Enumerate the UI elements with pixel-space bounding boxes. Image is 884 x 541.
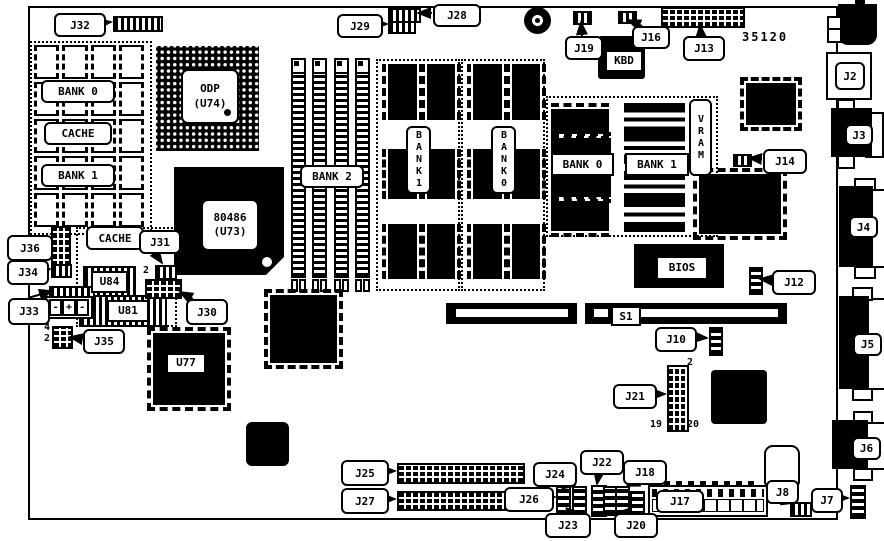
j21-pin2: 2 [687, 358, 693, 368]
j31-pin2: 2 [143, 266, 149, 276]
j6-label: J6 [860, 443, 873, 454]
j35-pin2: 2 [44, 334, 50, 344]
j27-connector [397, 491, 507, 511]
u84-chip-label: U84 [91, 271, 128, 293]
dram-bank0-text: BANK0 [499, 130, 509, 190]
battery-holder: - + - [45, 296, 93, 319]
j12-connector [749, 267, 763, 295]
j13-label: J13 [694, 43, 714, 54]
bios-chip-label: BIOS [656, 256, 708, 280]
j4-tab-bottom [854, 266, 876, 279]
j30-label: J30 [197, 307, 217, 318]
j8-label: J8 [776, 487, 789, 498]
j5-tab-bottom [852, 388, 873, 401]
j34-connector [51, 264, 72, 278]
j21-label: J21 [625, 391, 645, 402]
j25-callout: J25 [341, 460, 389, 486]
j35-pin2-text: 2 [44, 333, 50, 344]
j24-callout: J24 [533, 462, 577, 487]
j33-callout: J33 [8, 298, 50, 325]
dram-bank0-label: BANK0 [491, 126, 516, 194]
cache-chip [34, 193, 59, 227]
logic-chip-top-right [740, 77, 802, 131]
cache-bank1-label: BANK 1 [41, 164, 115, 187]
cache-chip [62, 45, 87, 79]
din-keyboard-connector [838, 4, 877, 45]
speaker [524, 7, 551, 34]
video-ram-socket [624, 197, 685, 232]
cache-chip [119, 193, 144, 227]
motherboard-diagram: J32 BANK 0 CACHE BANK 1 ODP (U74) 80486 … [0, 0, 884, 541]
dram-bank1-text: BANK1 [414, 130, 424, 190]
j10-callout: J10 [655, 327, 697, 352]
j6-tab-bottom [853, 468, 873, 481]
kbd-chip-label: KBD [605, 50, 643, 72]
j19-connector [573, 11, 592, 25]
j23-label: J23 [558, 520, 578, 531]
j21-pin2-text: 2 [687, 357, 693, 368]
j26-label: J26 [519, 494, 539, 505]
j12-callout: J12 [772, 270, 816, 295]
j35-connector [52, 326, 73, 349]
j14-connector [733, 154, 752, 167]
j26-connector [556, 486, 571, 516]
board-number-text: 35120 [742, 30, 788, 44]
cache-chip [91, 193, 116, 227]
j27-callout: J27 [341, 488, 389, 514]
j17-label: J17 [670, 496, 690, 507]
simm-latch-top [355, 58, 370, 74]
cache-chip [62, 193, 87, 227]
j31-callout: J31 [139, 230, 181, 254]
j13-connector [661, 7, 745, 28]
u81-text: U81 [118, 304, 138, 318]
cache-chip [119, 119, 144, 153]
j22-callout: J22 [580, 450, 624, 475]
din-connector-step [855, 0, 865, 6]
video-bank0-label: BANK 0 [551, 153, 614, 176]
j24-label: J24 [545, 469, 565, 480]
j36-connector [51, 226, 71, 268]
vram-text: VRAM [696, 114, 706, 162]
j29-callout: J29 [337, 14, 383, 38]
cpu-name: 80486 [213, 211, 246, 225]
simm-latch-top [291, 58, 306, 74]
cache-chip [119, 82, 144, 116]
dram-bank1-label: BANK1 [406, 126, 431, 194]
j4-label: J4 [857, 222, 870, 233]
bios-text: BIOS [669, 261, 696, 275]
j22-label: J22 [592, 457, 612, 468]
j21-pin19: 19 [650, 420, 662, 430]
logic-chip-right-of-j21 [711, 370, 767, 424]
video-bank1-text: BANK 1 [637, 159, 677, 170]
u77-chip-label: U77 [166, 353, 206, 374]
simm-latch-top [312, 58, 327, 74]
video-controller-chip [693, 168, 787, 240]
cpu-pin1-dot [262, 257, 272, 267]
video-ram-chip [551, 195, 609, 237]
simm-feet [355, 279, 370, 292]
vram-label: VRAM [689, 99, 712, 176]
j25-connector [397, 463, 525, 484]
j21-pin20-text: 20 [687, 419, 699, 430]
j29-label: J29 [350, 21, 370, 32]
j3-label: J3 [852, 130, 865, 141]
dram-chip [421, 64, 461, 120]
j31-label: J31 [150, 237, 170, 248]
j32-label: J32 [70, 20, 90, 31]
j21-connector [667, 365, 689, 432]
cache-bank1-text: BANK 1 [58, 170, 98, 181]
j20-callout: J20 [614, 513, 658, 538]
bank2-label: BANK 2 [300, 165, 364, 188]
j13-callout: J13 [683, 36, 725, 61]
j31-connector [155, 265, 177, 280]
u81-chip-label: U81 [107, 300, 149, 322]
j24-connector [572, 486, 587, 516]
cpu-ref: (U73) [213, 225, 246, 239]
j33-label: J33 [19, 306, 39, 317]
dram-chip [467, 224, 508, 279]
j18-label: J18 [635, 467, 655, 478]
j17-callout: J17 [656, 490, 704, 513]
j10-label: J10 [666, 334, 686, 345]
dram-chip [421, 224, 461, 279]
j21-callout: J21 [613, 384, 657, 409]
expansion-slot-key [456, 309, 568, 317]
j28-label: J28 [447, 10, 467, 21]
j14-label: J14 [775, 156, 795, 167]
logic-chip-bottom-left [246, 422, 289, 466]
cache-chip [34, 45, 59, 79]
u84-text: U84 [100, 275, 120, 289]
j19-label: J19 [574, 43, 594, 54]
j5-label: J5 [861, 339, 874, 350]
j32-callout: J32 [54, 13, 106, 37]
dram-chip [382, 224, 423, 279]
logic-chip-center [264, 289, 343, 369]
s1-slot-key-right [641, 309, 778, 317]
odp-pin1-dot [224, 109, 231, 116]
u77-text: U77 [176, 356, 196, 370]
dram-chip [382, 64, 423, 120]
odp-ref: (U74) [193, 97, 226, 111]
s1-text: S1 [619, 311, 632, 322]
j4-callout: J4 [849, 216, 878, 238]
j20-label: J20 [626, 520, 646, 531]
j16-label: J16 [641, 32, 661, 43]
odp-chip-label: ODP (U74) [181, 69, 239, 124]
cache-chip [119, 156, 144, 190]
j30-callout: J30 [186, 299, 228, 325]
j6-callout: J6 [852, 437, 881, 460]
s1-slot-key-left [594, 309, 608, 317]
j23-callout: J23 [545, 513, 591, 538]
battery-terminal-neg2: - [76, 299, 89, 316]
j7-callout: J7 [811, 488, 843, 513]
cache-text: CACHE [61, 128, 94, 139]
j21-pin20: 20 [687, 420, 699, 430]
j21-pin19-text: 19 [650, 419, 662, 430]
j36-callout: J36 [7, 235, 53, 261]
j8-connector [790, 502, 812, 517]
din-tab-lower [827, 28, 842, 43]
cache2-text: CACHE [98, 233, 131, 244]
battery-terminal-neg1: - [49, 299, 62, 316]
j19-callout: J19 [565, 36, 603, 60]
j27-label: J27 [355, 496, 375, 507]
kbd-text: KBD [614, 54, 634, 68]
j16-callout: J16 [632, 26, 670, 49]
j14-callout: J14 [763, 149, 807, 174]
j32-connector [113, 16, 163, 32]
j18-callout: J18 [623, 460, 667, 485]
j7-connector [850, 485, 866, 519]
video-bank0-text: BANK 0 [563, 159, 603, 170]
cache-chip [119, 45, 144, 79]
j10-connector [709, 327, 723, 356]
cache-label: CACHE [44, 122, 112, 145]
j28-connector [388, 8, 421, 23]
dram-chip [506, 224, 546, 279]
j16-connector [618, 11, 637, 24]
j2-label: J2 [843, 71, 856, 82]
j35-label: J35 [94, 336, 114, 347]
cache-bank0-label: BANK 0 [41, 80, 115, 103]
battery-terminal-plus: + [62, 299, 75, 316]
odp-name: ODP [200, 82, 220, 96]
bank2-text: BANK 2 [312, 171, 352, 182]
j34-callout: J34 [7, 260, 49, 285]
j3-tab-bottom [837, 155, 855, 169]
video-bank1-label: BANK 1 [625, 153, 689, 176]
cache-chip [91, 45, 116, 79]
dram-chip [506, 64, 546, 120]
j3-callout: J3 [845, 124, 873, 146]
j26-callout: J26 [504, 487, 554, 512]
j35-pin4: 4 [44, 323, 50, 333]
dram-chip [467, 64, 508, 120]
j18-connector [615, 486, 630, 516]
j34-label: J34 [18, 267, 38, 278]
j30-connector [145, 279, 182, 299]
simm-latch-top [334, 58, 349, 74]
j25-label: J25 [355, 468, 375, 479]
j5-callout: J5 [853, 333, 882, 356]
s1-label: S1 [611, 306, 641, 326]
j28-callout: J28 [433, 4, 481, 27]
j12-label: J12 [784, 277, 804, 288]
j31-pin2-text: 2 [143, 265, 149, 276]
j35-callout: J35 [83, 329, 125, 354]
j2-callout: J2 [835, 62, 865, 90]
cpu-chip-label: 80486 (U73) [201, 199, 259, 251]
j7-label: J7 [820, 495, 833, 506]
j35-pin4-text: 4 [44, 322, 50, 333]
j8-callout: J8 [766, 480, 799, 504]
cache-bank0-text: BANK 0 [58, 86, 98, 97]
board-part-number: 35120 [742, 31, 788, 43]
cache2-label: CACHE [86, 226, 144, 250]
j36-label: J36 [20, 243, 40, 254]
